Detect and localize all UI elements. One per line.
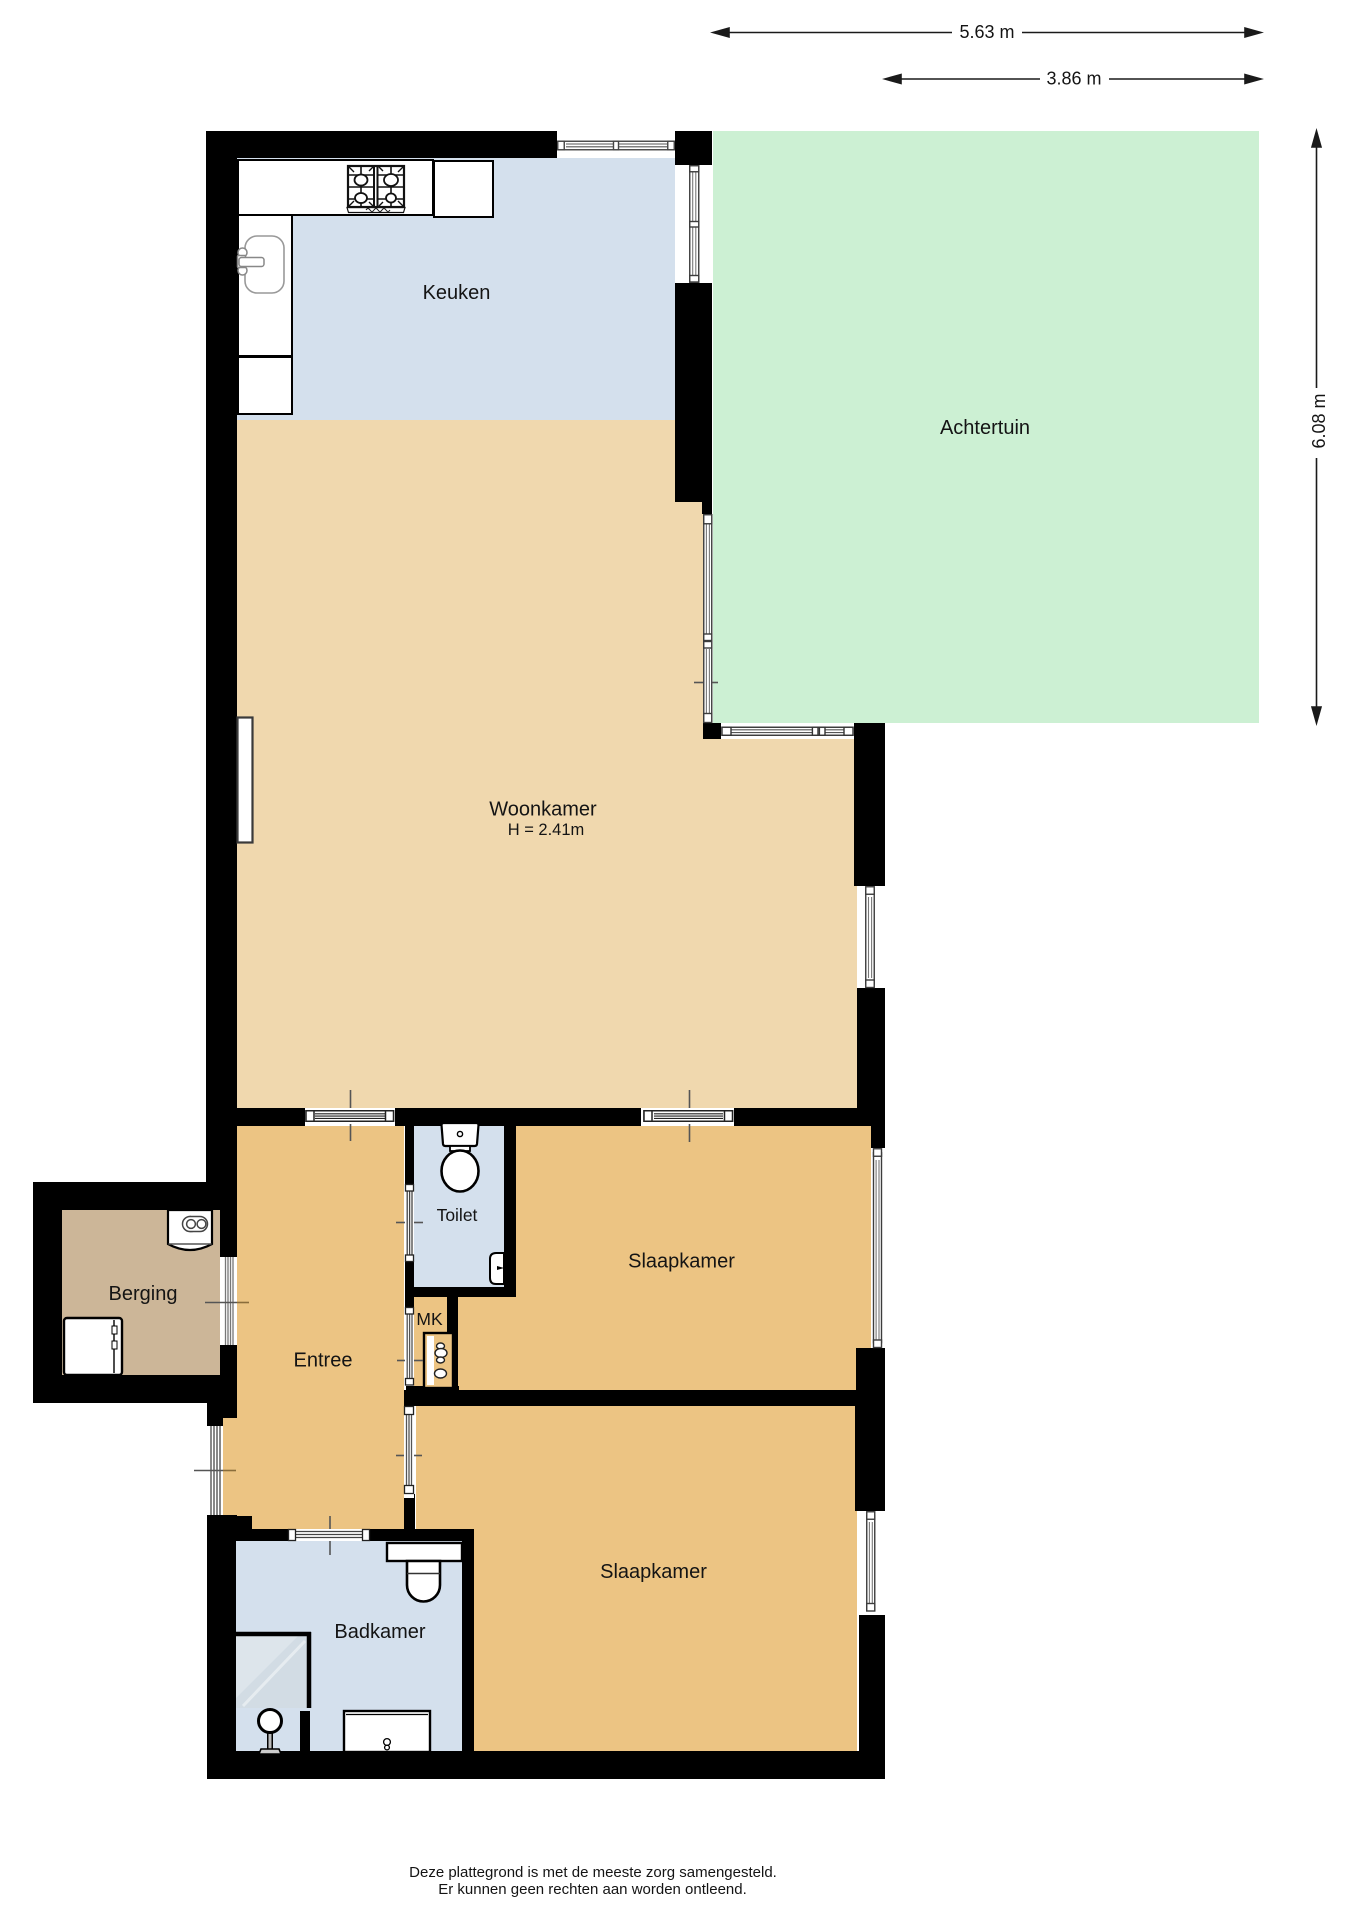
svg-text:Toilet: Toilet [437,1205,478,1225]
svg-text:Slaapkamer: Slaapkamer [628,1251,735,1273]
svg-text:6.08 m: 6.08 m [1309,393,1329,448]
svg-text:Achtertuin: Achtertuin [940,417,1030,439]
svg-text:Er kunnen geen rechten aan wor: Er kunnen geen rechten aan worden ontlee… [438,1881,747,1898]
svg-text:Woonkamer: Woonkamer [489,799,597,821]
svg-text:MK: MK [416,1309,443,1329]
svg-text:Keuken: Keuken [423,282,491,304]
svg-text:Berging: Berging [109,1283,178,1305]
svg-text:Deze plattegrond is met de mee: Deze plattegrond is met de meeste zorg s… [409,1864,777,1881]
svg-text:5.63 m: 5.63 m [959,22,1014,42]
svg-text:Entree: Entree [294,1350,353,1372]
svg-text:Slaapkamer: Slaapkamer [600,1561,707,1583]
svg-text:Badkamer: Badkamer [334,1621,425,1643]
svg-text:3.86 m: 3.86 m [1046,69,1101,89]
svg-text:H = 2.41m: H = 2.41m [508,821,585,839]
